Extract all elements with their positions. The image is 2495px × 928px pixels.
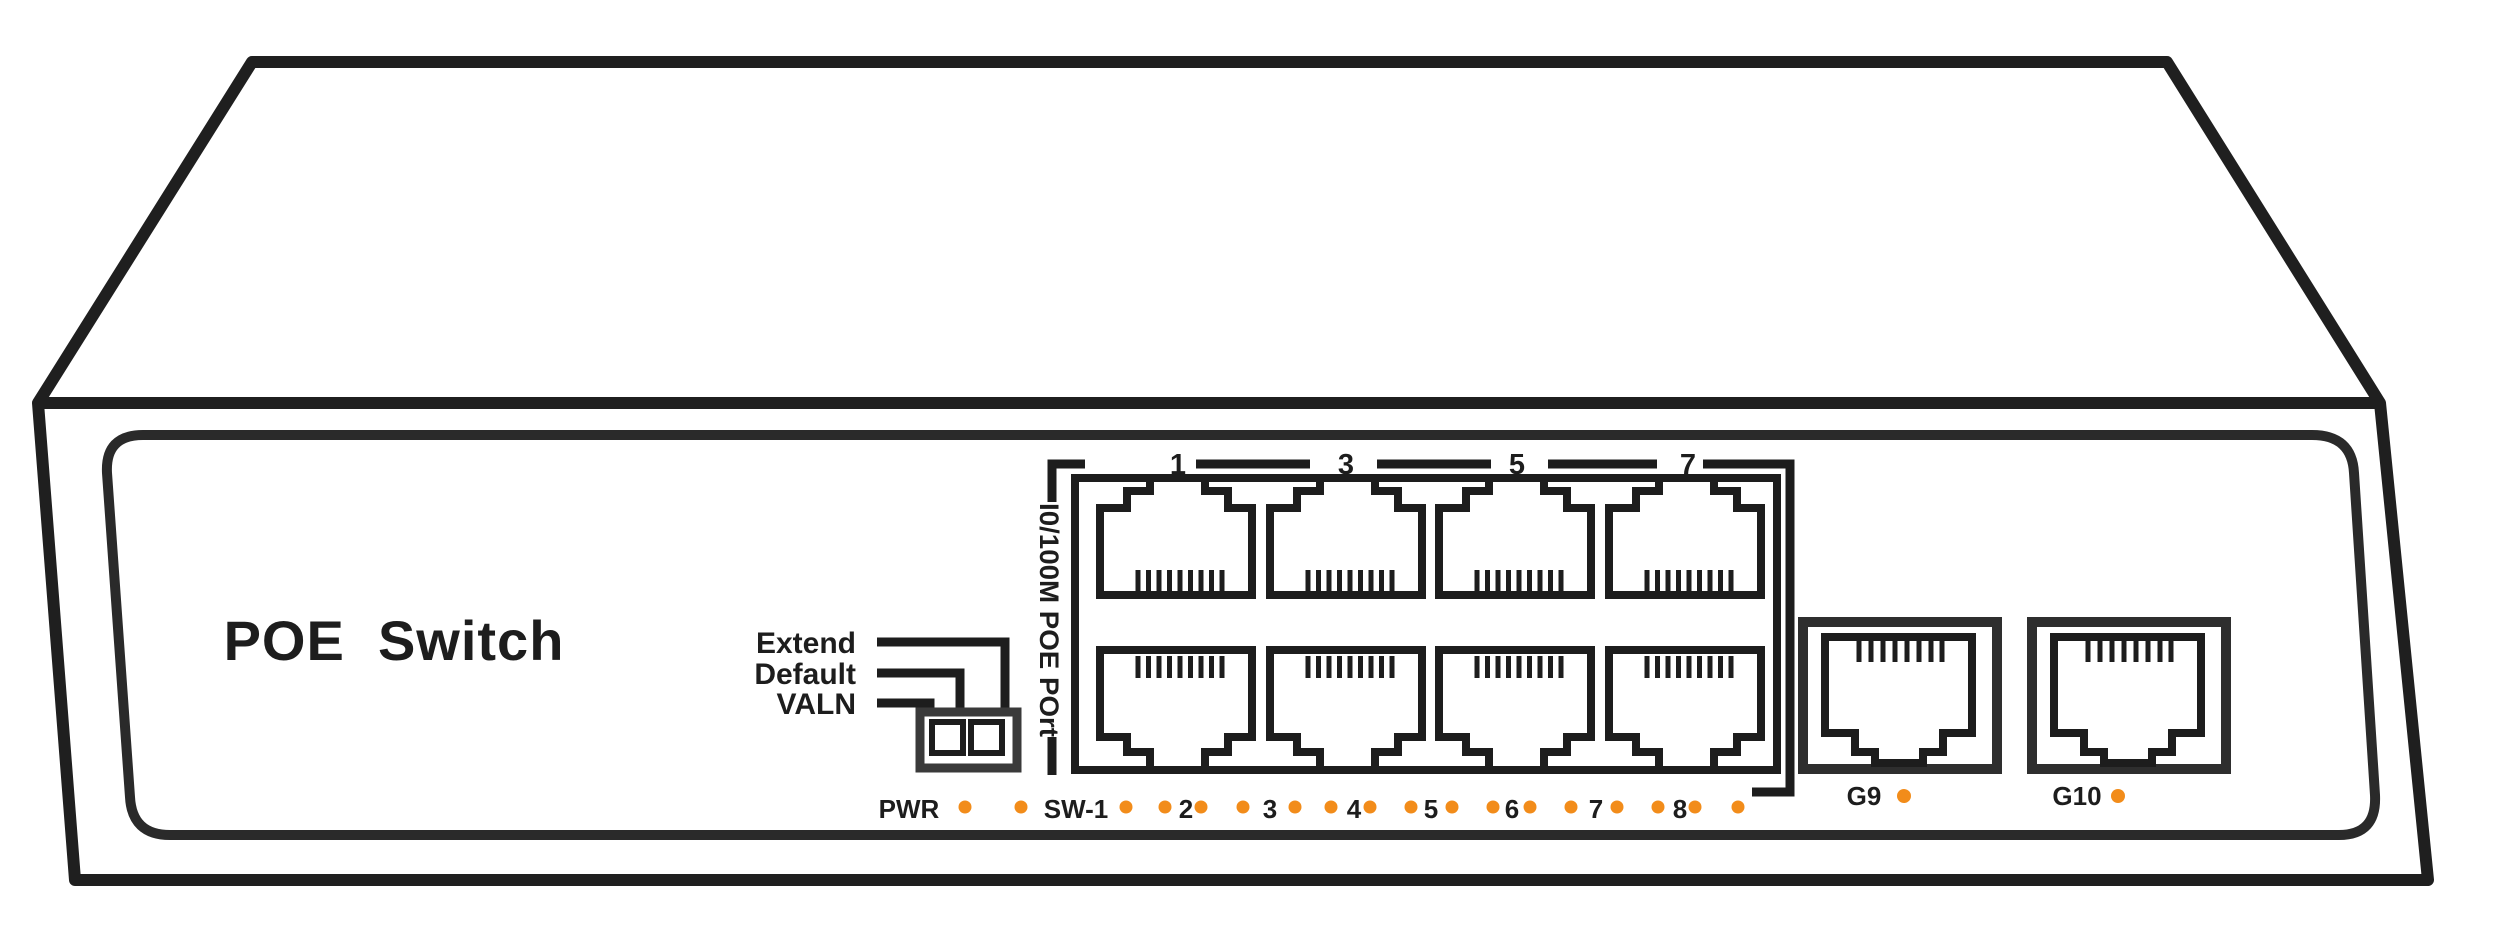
g10-label: G10 (2052, 781, 2101, 811)
device-drawing: POE Switch Extend Default VALN I0/100M P… (0, 0, 2495, 928)
led-dot (1689, 801, 1702, 814)
poe-switch-diagram: POE Switch Extend Default VALN I0/100M P… (0, 0, 2495, 928)
led-dot (1289, 801, 1302, 814)
led-dot (1487, 801, 1500, 814)
led-dot (1652, 801, 1665, 814)
dip-switch-toggle-2 (971, 722, 1002, 753)
led-dot (1120, 801, 1133, 814)
g9-label: G9 (1847, 781, 1882, 811)
default-label: Default (754, 658, 856, 691)
led-label-8: 8 (1673, 794, 1687, 824)
extend-label: Extend (756, 627, 856, 660)
sw1-led-label: SW-1 (1044, 794, 1108, 824)
led-label-7: 7 (1589, 794, 1603, 824)
port-group-vertical-label: I0/100M POE POrt (1034, 503, 1064, 737)
led-dot (1565, 801, 1578, 814)
led-dot (2111, 789, 2125, 803)
valn-label: VALN (777, 688, 856, 721)
led-label-5: 5 (1424, 794, 1438, 824)
led-label-6: 6 (1505, 794, 1519, 824)
led-dot (1237, 801, 1250, 814)
led-dot (1732, 801, 1745, 814)
led-label-3: 3 (1263, 794, 1277, 824)
led-dot (959, 801, 972, 814)
pwr-led-label: PWR (879, 794, 940, 824)
led-dot (1015, 801, 1028, 814)
led-dot (1195, 801, 1208, 814)
led-dot (1611, 801, 1624, 814)
dip-switch-toggle-1 (932, 722, 963, 753)
led-dot (1446, 801, 1459, 814)
g9-port (1803, 622, 1997, 769)
dip-switch (920, 712, 1017, 768)
led-dot (1364, 801, 1377, 814)
led-label-4: 4 (1347, 794, 1362, 824)
g10-port (2032, 622, 2226, 769)
led-dot (1524, 801, 1537, 814)
led-label-2: 2 (1179, 794, 1193, 824)
led-dot (1405, 801, 1418, 814)
led-dot (1159, 801, 1172, 814)
led-dot (1897, 789, 1911, 803)
led-dot (1325, 801, 1338, 814)
device-title: POE Switch (224, 609, 565, 672)
